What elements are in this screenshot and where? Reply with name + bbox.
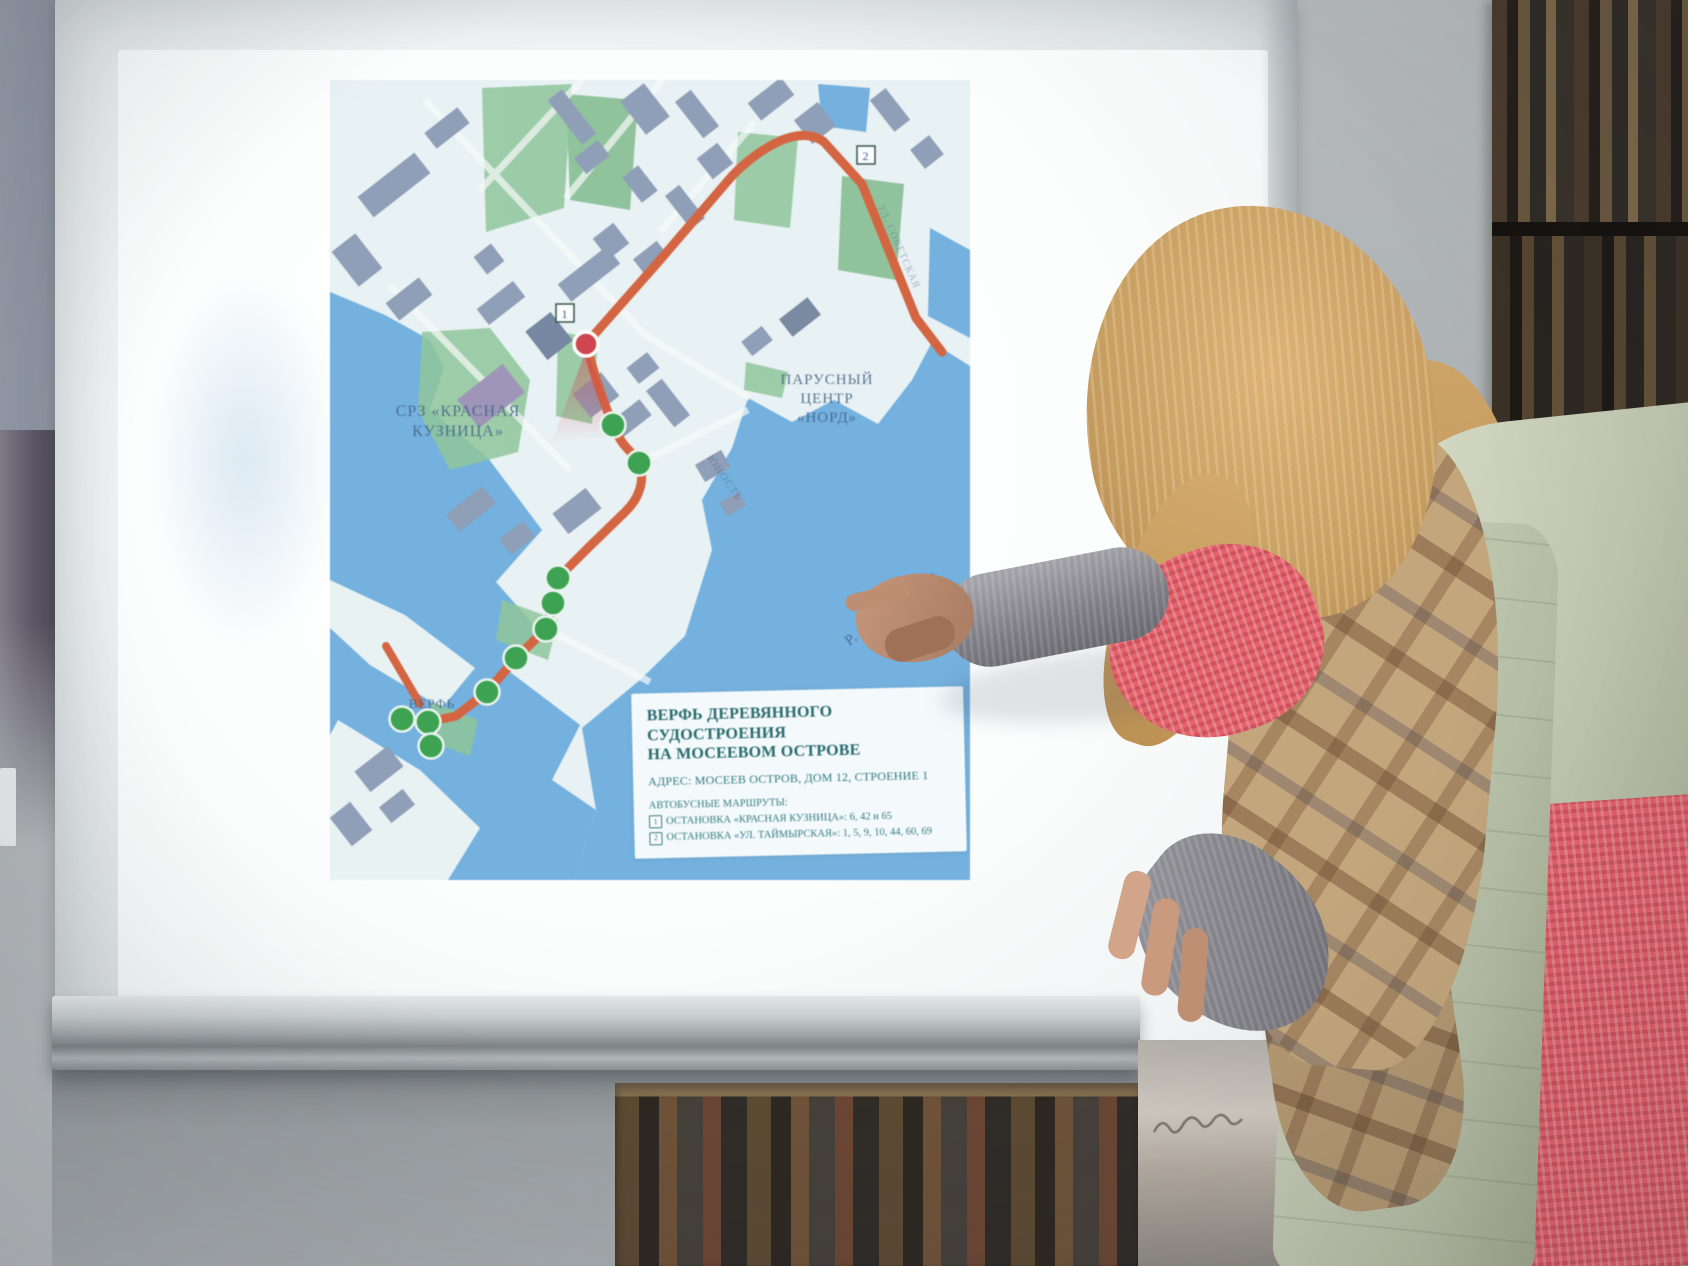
shelf-board — [1492, 222, 1688, 236]
photo-scene: 1 2 СРЗ «КРАСНАЯ КУЗНИЦА» ПАРУСНЫЙ ЦЕНТР… — [0, 0, 1688, 1266]
info-address: АДРЕС: МОСЕЕВ ОСТРОВ, ДОМ 12, СТРОЕНИЕ 1 — [648, 767, 950, 789]
stop2-marker-icon: 2 — [649, 832, 662, 845]
stop-marker-1: 1 — [556, 304, 574, 322]
label-sailing-center: ЦЕНТР — [800, 391, 853, 407]
svg-text:1: 1 — [562, 307, 569, 321]
label-shipyard: СРЗ «КРАСНАЯ — [396, 403, 521, 420]
info-title-line1: ВЕРФЬ ДЕРЕВЯННОГО СУДОСТРОЕНИЯ — [646, 700, 949, 746]
svg-text:2: 2 — [863, 149, 870, 163]
info-stop1-text: ОСТАНОВКА «КРАСНАЯ КУЗНИЦА»: 6, 42 и 65 — [666, 811, 892, 827]
handwriting-smudge — [1150, 1110, 1250, 1144]
bookshelf-bottom — [615, 1083, 1142, 1266]
origin-marker — [574, 332, 598, 356]
stop-marker-2: 2 — [857, 146, 875, 164]
bookshelf-top-right — [1492, 0, 1688, 470]
label-sailing-center: «НОРД» — [797, 410, 857, 426]
label-shipyard: КУЗНИЦА» — [412, 423, 504, 440]
whiteboard-tray — [52, 996, 1140, 1070]
label-sailing-center: ПАРУСНЫЙ — [780, 371, 873, 388]
book-row — [1492, 0, 1688, 222]
info-stop2-text: ОСТАНОВКА «УЛ. ТАЙМЫРСКАЯ»: 1, 5, 9, 10,… — [666, 826, 932, 843]
table-edge — [1138, 1040, 1288, 1266]
label-wharf: ВЕРФЬ — [409, 696, 455, 711]
stop1-marker-icon: 1 — [649, 815, 662, 828]
info-box: ВЕРФЬ ДЕРЕВЯННОГО СУДОСТРОЕНИЯ НА МОСЕЕВ… — [631, 686, 967, 859]
